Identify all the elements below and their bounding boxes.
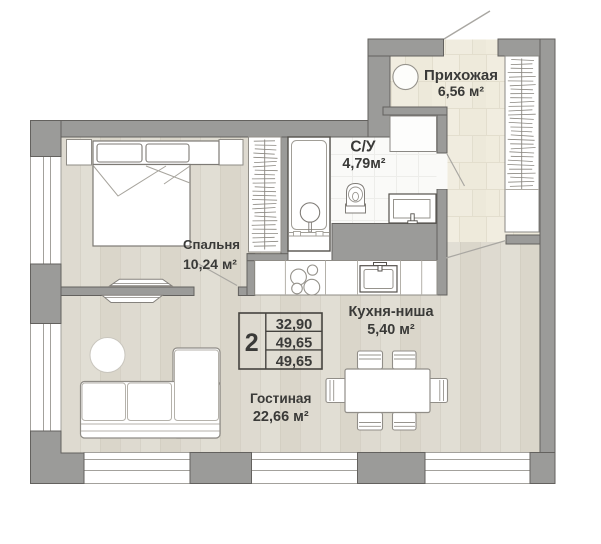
svg-text:С/У: С/У [350, 139, 376, 156]
svg-text:Гостиная: Гостиная [250, 391, 311, 406]
svg-text:Кухня-ниша: Кухня-ниша [348, 304, 434, 320]
svg-text:Прихожая: Прихожая [424, 67, 498, 84]
svg-text:49,65: 49,65 [276, 354, 313, 370]
svg-text:5,40 м²: 5,40 м² [367, 322, 415, 338]
svg-text:2: 2 [245, 329, 259, 357]
svg-text:49,65: 49,65 [276, 336, 313, 352]
svg-text:32,90: 32,90 [276, 317, 313, 333]
svg-text:4,79м²: 4,79м² [342, 156, 385, 172]
svg-text:6,56 м²: 6,56 м² [438, 83, 484, 99]
svg-text:10,24 м²: 10,24 м² [183, 256, 237, 272]
svg-text:Спальня: Спальня [183, 237, 240, 252]
svg-text:22,66 м²: 22,66 м² [253, 409, 309, 425]
